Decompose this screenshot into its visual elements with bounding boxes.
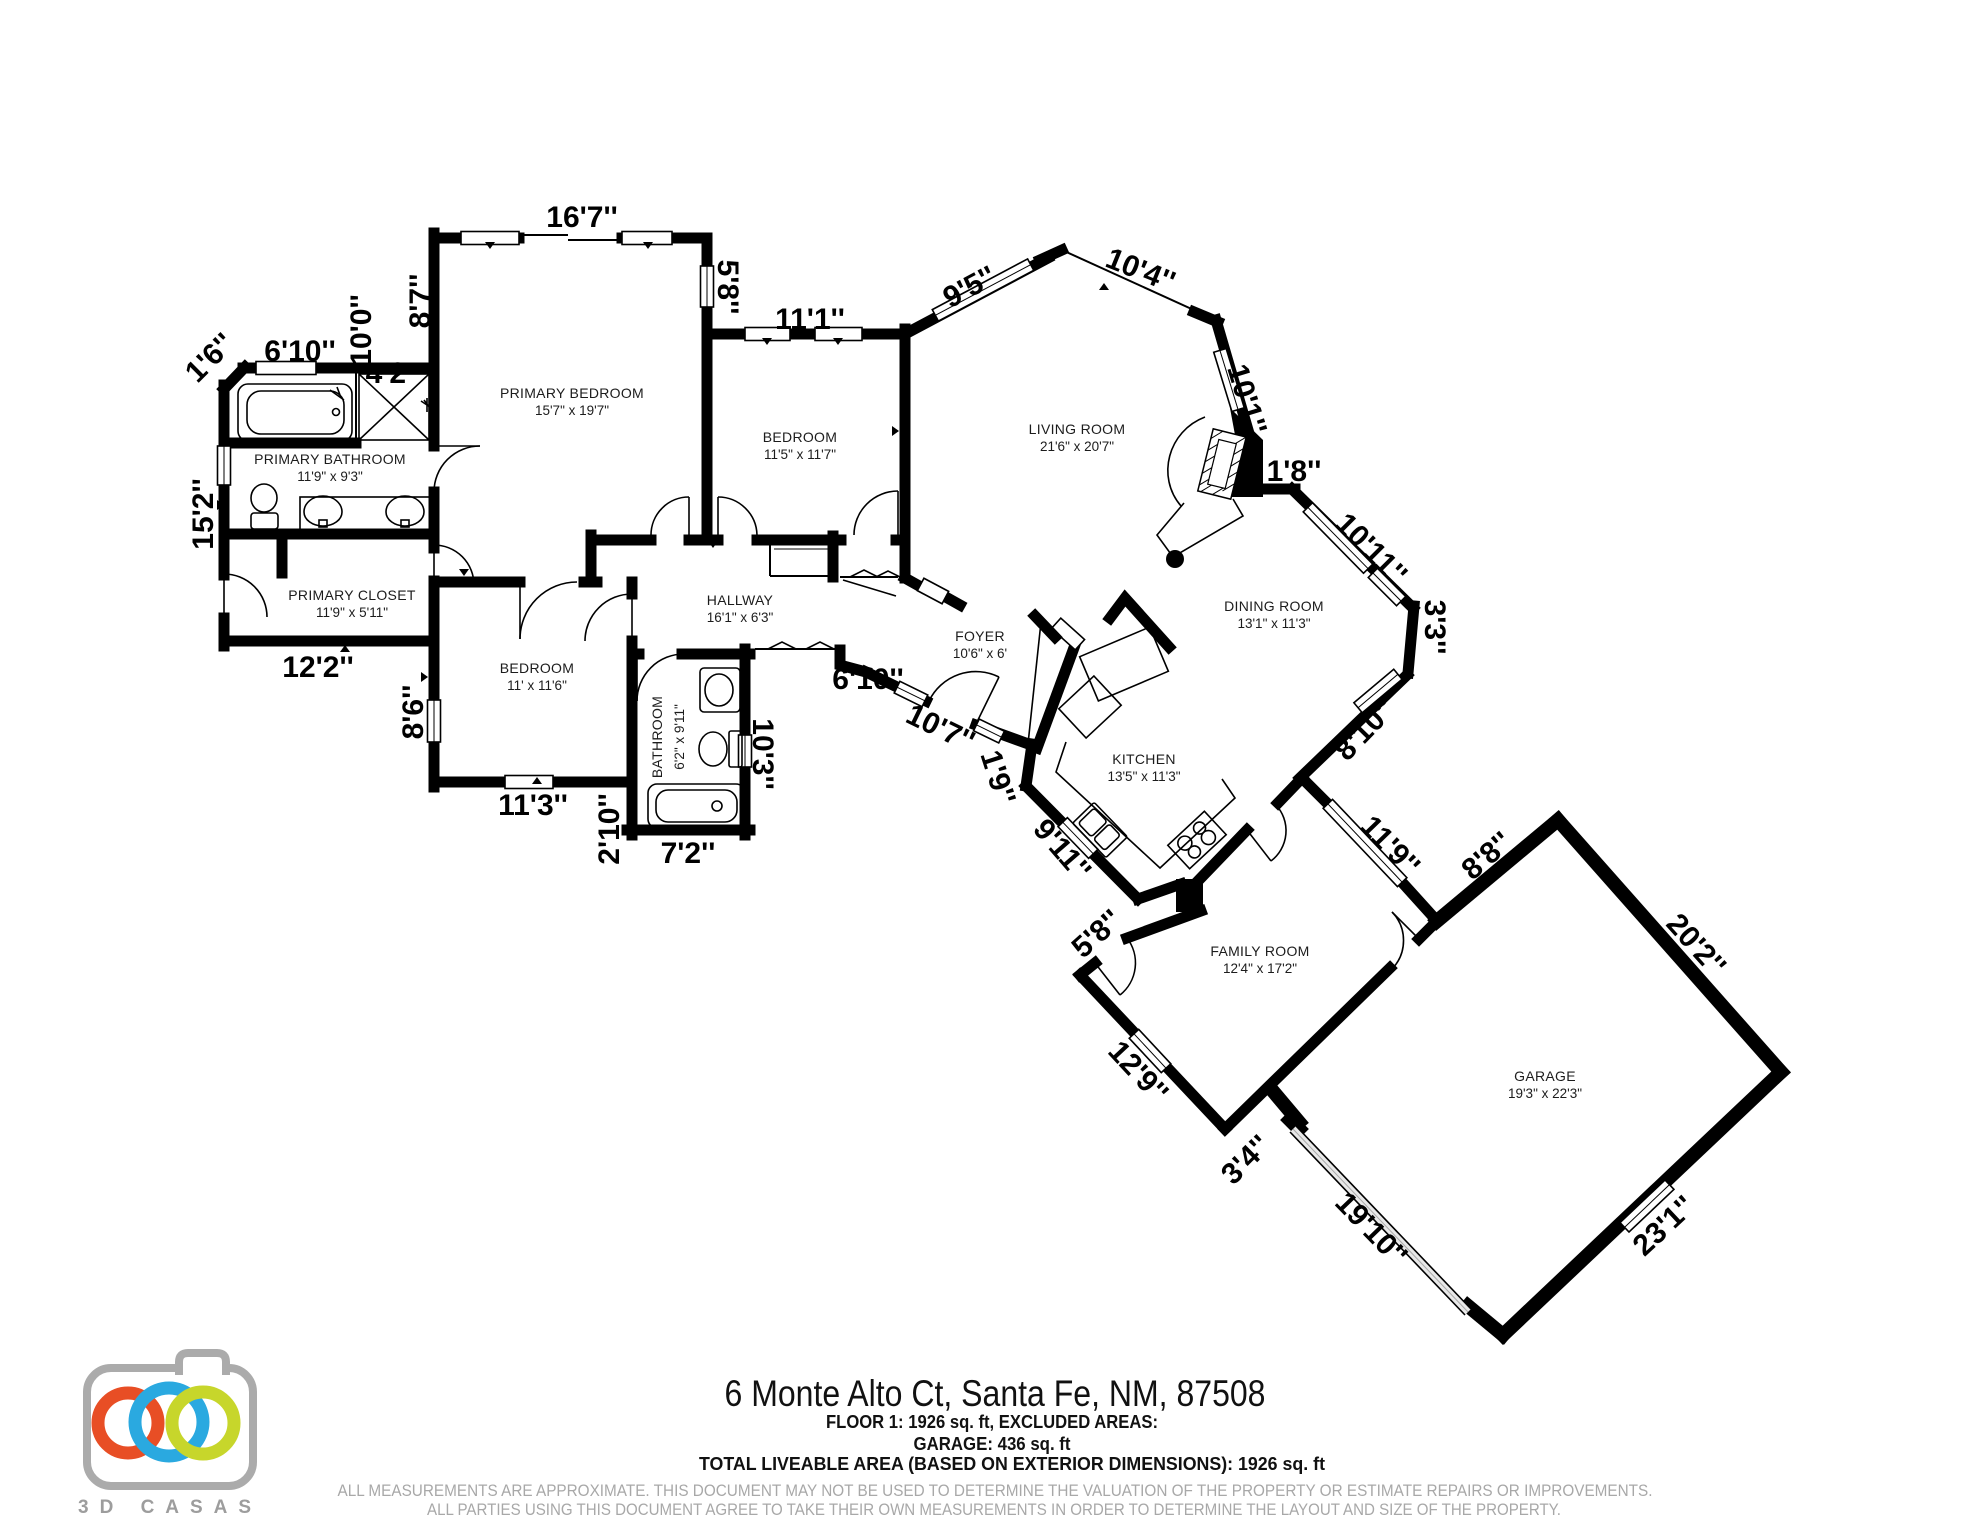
svg-text:ALL MEASUREMENTS ARE APPROXIMA: ALL MEASUREMENTS ARE APPROXIMATE. THIS D…: [338, 1481, 1653, 1500]
svg-text:21'6" x 20'7": 21'6" x 20'7": [1040, 439, 1114, 454]
svg-text:KITCHEN: KITCHEN: [1112, 751, 1176, 767]
svg-text:2'10'': 2'10'': [593, 793, 626, 864]
svg-text:11'3'': 11'3'': [498, 789, 568, 822]
svg-text:LIVING ROOM: LIVING ROOM: [1029, 421, 1126, 437]
svg-text:19'3" x 22'3": 19'3" x 22'3": [1508, 1086, 1582, 1101]
svg-text:5'8'': 5'8'': [711, 260, 744, 315]
svg-text:8'6'': 8'6'': [397, 685, 430, 740]
svg-text:FAMILY ROOM: FAMILY ROOM: [1210, 943, 1309, 959]
svg-text:3D CASAS: 3D CASAS: [78, 1497, 262, 1518]
svg-text:HALLWAY: HALLWAY: [707, 592, 774, 608]
svg-text:16'1" x 6'3": 16'1" x 6'3": [707, 610, 774, 625]
svg-text:ALL PARTIES USING THIS DOCUMEN: ALL PARTIES USING THIS DOCUMENT AGREE TO…: [427, 1500, 1561, 1519]
svg-text:PRIMARY CLOSET: PRIMARY CLOSET: [288, 587, 416, 603]
svg-text:6 Monte Alto Ct, Santa Fe, NM,: 6 Monte Alto Ct, Santa Fe, NM, 87508: [725, 1373, 1266, 1414]
svg-text:11'5" x 11'7": 11'5" x 11'7": [764, 447, 836, 462]
svg-text:6'2" x 9'11": 6'2" x 9'11": [672, 704, 687, 770]
svg-text:11' x 11'6": 11' x 11'6": [507, 678, 567, 693]
svg-text:PRIMARY BEDROOM: PRIMARY BEDROOM: [500, 385, 644, 401]
svg-text:BEDROOM: BEDROOM: [500, 660, 574, 676]
svg-text:BEDROOM: BEDROOM: [763, 429, 837, 445]
svg-text:10'0'': 10'0'': [345, 294, 378, 365]
svg-text:10'6" x 6': 10'6" x 6': [953, 646, 1007, 661]
svg-text:12'2'': 12'2'': [282, 651, 353, 684]
svg-text:6'10'': 6'10'': [832, 663, 903, 696]
svg-text:12'4" x 17'2": 12'4" x 17'2": [1223, 961, 1297, 976]
svg-text:FOYER: FOYER: [955, 628, 1005, 644]
svg-text:15'7" x 19'7": 15'7" x 19'7": [535, 403, 609, 418]
svg-text:11'1'': 11'1'': [775, 303, 845, 336]
svg-text:13'1" x 11'3": 13'1" x 11'3": [1237, 616, 1310, 631]
svg-text:DINING ROOM: DINING ROOM: [1224, 598, 1324, 614]
svg-text:11'9" x 5'11": 11'9" x 5'11": [316, 605, 388, 620]
svg-text:FLOOR 1: 1926 sq. ft, EXCLUDED: FLOOR 1: 1926 sq. ft, EXCLUDED AREAS:: [826, 1412, 1158, 1432]
svg-text:8'7'': 8'7'': [404, 274, 437, 329]
svg-text:GARAGE: GARAGE: [1514, 1068, 1576, 1084]
svg-text:3'3'': 3'3'': [1418, 600, 1451, 655]
svg-text:10'3'': 10'3'': [746, 718, 779, 789]
svg-text:4'2'': 4'2'': [366, 357, 421, 390]
svg-text:GARAGE: 436 sq. ft: GARAGE: 436 sq. ft: [914, 1434, 1071, 1454]
svg-text:16'7'': 16'7'': [546, 201, 617, 234]
svg-text:TOTAL LIVEABLE AREA (BASED ON: TOTAL LIVEABLE AREA (BASED ON EXTERIOR D…: [699, 1454, 1325, 1474]
svg-text:13'5" x 11'3": 13'5" x 11'3": [1107, 769, 1180, 784]
svg-text:15'2'': 15'2'': [187, 478, 220, 549]
svg-text:BATHROOM: BATHROOM: [649, 696, 665, 778]
svg-text:PRIMARY BATHROOM: PRIMARY BATHROOM: [254, 451, 406, 467]
svg-text:6'10'': 6'10'': [264, 335, 335, 368]
svg-text:11'9" x 9'3": 11'9" x 9'3": [297, 469, 363, 484]
svg-text:1'8'': 1'8'': [1267, 455, 1322, 488]
svg-text:7'2'': 7'2'': [661, 837, 716, 870]
